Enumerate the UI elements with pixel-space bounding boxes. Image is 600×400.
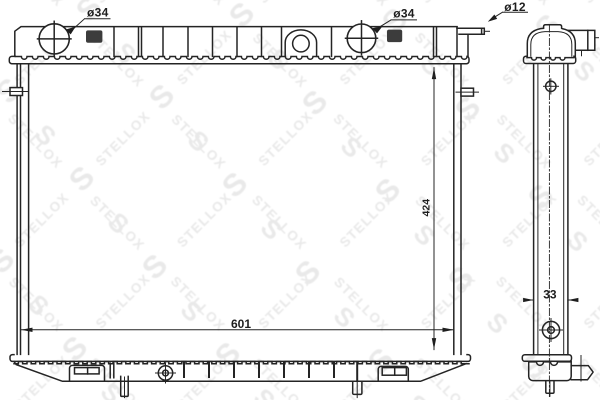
svg-text:33: 33: [543, 287, 557, 301]
svg-text:424: 424: [421, 199, 433, 217]
svg-text:ø12: ø12: [504, 0, 526, 14]
svg-text:ø34: ø34: [87, 6, 109, 20]
svg-text:ø34: ø34: [393, 6, 415, 20]
svg-text:601: 601: [231, 317, 251, 331]
